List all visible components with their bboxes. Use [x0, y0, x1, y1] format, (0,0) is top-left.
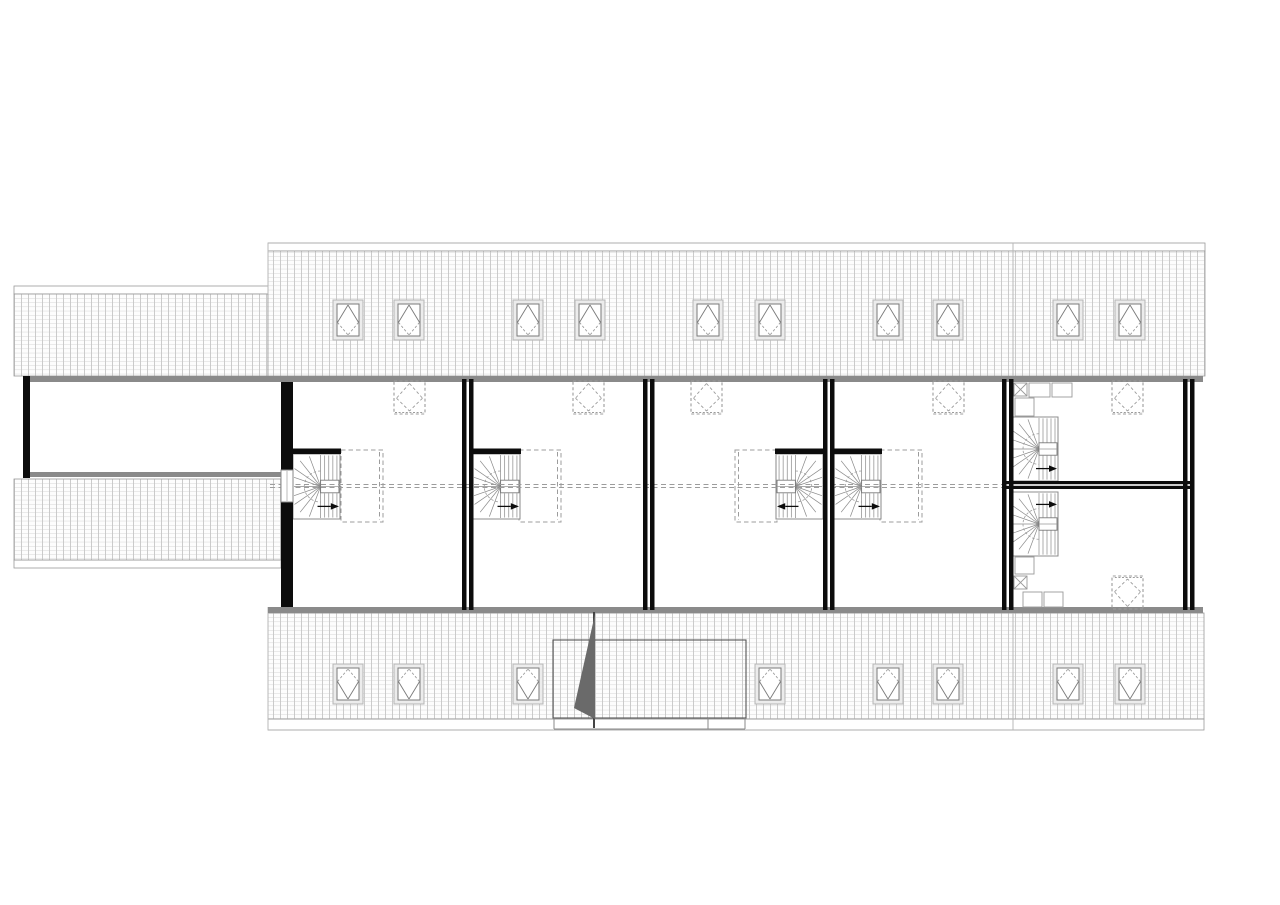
roof-window: [1053, 664, 1083, 704]
stair-void-dashed-box: [735, 450, 777, 522]
roof-window: [333, 300, 363, 340]
roof-window: [933, 300, 963, 340]
roof-window: [513, 664, 543, 704]
floor-plan-drawing: [0, 0, 1280, 905]
roof-window: [933, 664, 963, 704]
floor-plan-canvas: [0, 0, 1280, 905]
fixture-box: [1044, 592, 1063, 607]
roof-window: [693, 300, 723, 340]
stair-unit-5-lower: [1012, 492, 1058, 556]
plan-line: [410, 384, 423, 399]
roof-window: [1115, 300, 1145, 340]
party-wall-2-3: [643, 379, 655, 610]
plan-line: [1128, 579, 1141, 592]
roof-window: [333, 664, 363, 704]
plan-line: [949, 384, 962, 399]
roof-window-dashed: [1112, 381, 1143, 414]
roof-eave-strip: [14, 286, 268, 294]
north-facade-band: [23, 376, 1203, 382]
south-facade-band: [268, 607, 1203, 613]
roof-eave-strip: [268, 719, 1204, 730]
unit1-west-wall-bot: [281, 502, 293, 607]
east-gable-wall: [1183, 379, 1195, 610]
stair-void-dashed-box: [880, 450, 922, 522]
stair-void-dashed-box: [519, 450, 561, 522]
plan-line: [576, 384, 589, 399]
plan-line: [694, 384, 707, 399]
party-wall-1-2: [462, 379, 474, 610]
fixture-x-box: [1014, 576, 1027, 589]
plan-line: [936, 384, 949, 399]
roof-window: [873, 664, 903, 704]
stair-side-wall: [775, 449, 824, 455]
fixture-box: [1052, 383, 1072, 397]
corridor-window: [281, 470, 293, 502]
plan-line: [410, 398, 423, 411]
left-wing-north-roof: [14, 294, 268, 376]
roof-window: [513, 300, 543, 340]
roof-window-dashed: [573, 381, 604, 414]
plan-line: [589, 384, 602, 399]
roof-eave-strip: [14, 560, 281, 568]
stair-unit-3: [776, 454, 823, 519]
plan-line: [397, 398, 410, 411]
roof-window: [394, 300, 424, 340]
plan-line: [1115, 398, 1128, 411]
plan-line: [1115, 592, 1128, 607]
party-wall-4-5: [1002, 379, 1014, 610]
plan-line: [1128, 398, 1141, 411]
roof-window: [873, 300, 903, 340]
left-wing-south-roof: [14, 479, 281, 560]
roof-window: [575, 300, 605, 340]
stair-unit-2: [473, 454, 520, 519]
plan-line: [694, 398, 707, 411]
fixture-box: [1023, 592, 1042, 607]
plan-line: [936, 398, 949, 411]
fixture-box: [1015, 557, 1034, 574]
plan-line: [1115, 384, 1128, 399]
stair-side-wall: [833, 449, 882, 455]
stair-unit-5-upper: [1012, 417, 1058, 481]
plan-line: [707, 384, 720, 399]
roof-window: [755, 300, 785, 340]
plan-line: [707, 398, 720, 411]
fixture-box: [1029, 383, 1050, 397]
party-wall-3-4: [823, 379, 835, 610]
stair-unit-1: [293, 454, 340, 519]
roof-window-dashed: [1112, 576, 1143, 609]
roof-window-dashed: [933, 381, 964, 414]
unit5-cross-wall: [1006, 481, 1193, 489]
unit1-west-wall-top: [281, 382, 293, 470]
plan-line: [1128, 384, 1141, 399]
plan-line: [589, 398, 602, 411]
fixture-box: [1015, 398, 1034, 416]
left-wing-west-wall: [23, 376, 30, 478]
left-corridor-band: [30, 472, 282, 477]
stair-void-dashed-box: [341, 450, 383, 522]
plan-line: [949, 398, 962, 411]
roof-window: [755, 664, 785, 704]
stair-side-wall: [292, 449, 341, 455]
roof-window-dashed: [394, 381, 425, 414]
stair-side-wall: [472, 449, 521, 455]
roof-window: [1115, 664, 1145, 704]
roof-window-dashed: [691, 381, 722, 414]
plan-line: [1115, 579, 1128, 592]
fixture-x-box: [1014, 383, 1027, 396]
roof-eave-strip: [268, 243, 1205, 251]
plan-line: [397, 384, 410, 399]
plan-line: [576, 398, 589, 411]
roof-window: [1053, 300, 1083, 340]
stair-unit-4: [834, 454, 881, 519]
plan-line: [1128, 592, 1141, 607]
roof-window: [394, 664, 424, 704]
